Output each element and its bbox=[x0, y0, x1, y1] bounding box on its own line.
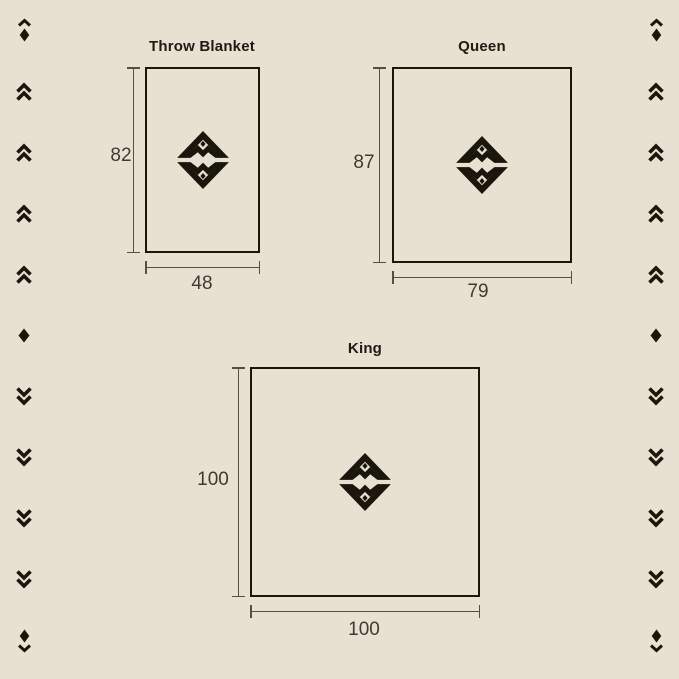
double-chevron-up-icon bbox=[647, 201, 665, 227]
double-chevron-up-icon bbox=[15, 79, 33, 105]
double-chevron-up-icon bbox=[15, 262, 33, 288]
queen-outline bbox=[392, 67, 572, 263]
double-chevron-down-icon bbox=[15, 505, 33, 531]
queen-height-value: 87 bbox=[349, 153, 379, 172]
double-chevron-down-icon bbox=[647, 566, 665, 592]
right-border-ornaments bbox=[643, 18, 669, 653]
queen-width-value: 79 bbox=[463, 282, 493, 301]
king-title: King bbox=[265, 340, 465, 358]
diamond-over-chevron-down-icon bbox=[16, 627, 33, 653]
double-chevron-down-icon bbox=[15, 383, 33, 409]
diamond-over-chevron-down-icon bbox=[648, 627, 665, 653]
king-width-value: 100 bbox=[344, 620, 384, 639]
throw-blanket-outline bbox=[145, 67, 260, 253]
brand-monogram-icon bbox=[456, 136, 508, 194]
brand-monogram-icon bbox=[177, 131, 229, 189]
double-chevron-down-icon bbox=[15, 444, 33, 470]
queen-title: Queen bbox=[382, 38, 582, 56]
chevron-up-over-diamond-icon bbox=[648, 18, 665, 44]
double-chevron-up-icon bbox=[15, 140, 33, 166]
diamond-icon bbox=[18, 322, 30, 348]
throw-height-value: 82 bbox=[106, 146, 136, 165]
throw-blanket-title: Throw Blanket bbox=[102, 38, 302, 56]
double-chevron-up-icon bbox=[647, 79, 665, 105]
king-height-value: 100 bbox=[193, 470, 233, 489]
diamond-icon bbox=[650, 322, 662, 348]
brand-monogram-icon bbox=[339, 453, 391, 511]
double-chevron-up-icon bbox=[15, 201, 33, 227]
throw-width-value: 48 bbox=[187, 274, 217, 293]
double-chevron-down-icon bbox=[647, 505, 665, 531]
king-width-dimension-line bbox=[250, 605, 480, 618]
double-chevron-down-icon bbox=[647, 383, 665, 409]
chevron-up-over-diamond-icon bbox=[16, 18, 33, 44]
king-outline bbox=[250, 367, 480, 597]
king-height-dimension-line bbox=[232, 367, 245, 597]
left-border-ornaments bbox=[11, 18, 37, 653]
double-chevron-up-icon bbox=[647, 262, 665, 288]
double-chevron-down-icon bbox=[647, 444, 665, 470]
double-chevron-down-icon bbox=[15, 566, 33, 592]
double-chevron-up-icon bbox=[647, 140, 665, 166]
size-chart-canvas: Throw Blanket 82 48 Queen 87 79 King 100… bbox=[0, 0, 679, 679]
